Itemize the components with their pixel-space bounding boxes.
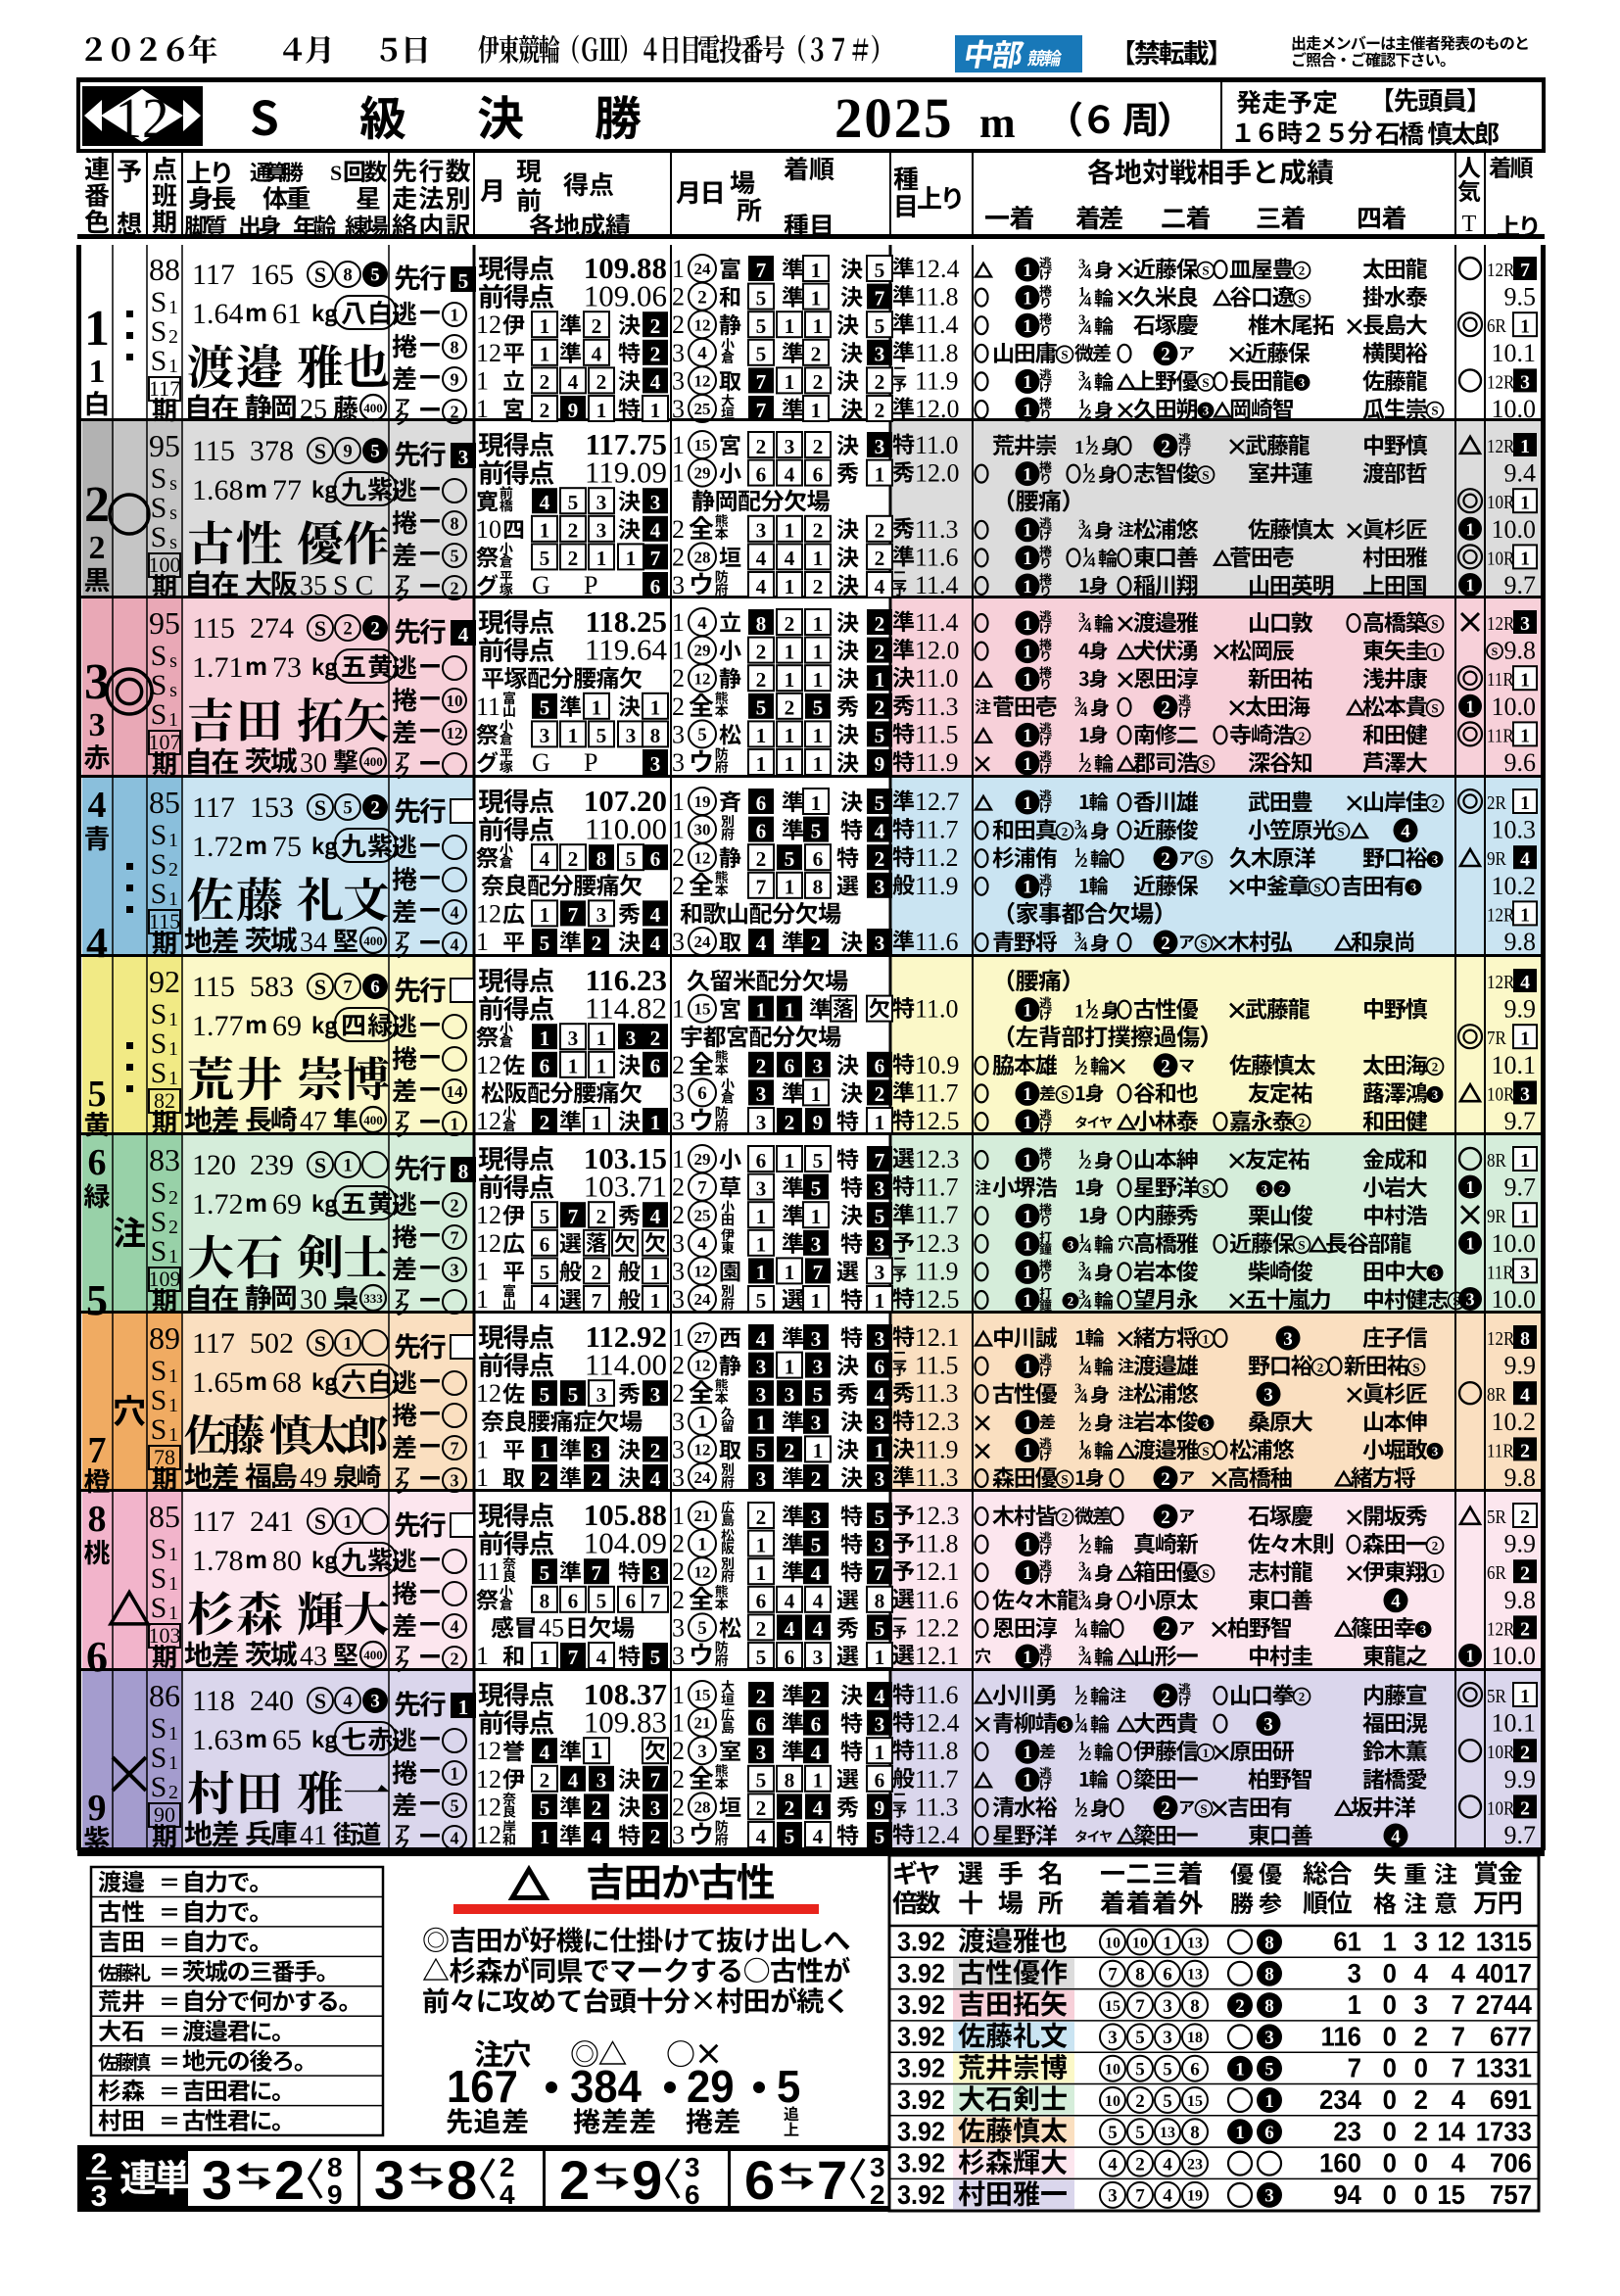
svg-text:2: 2 xyxy=(875,640,885,663)
svg-text:9R: 9R xyxy=(1487,1206,1506,1228)
svg-text:19: 19 xyxy=(1187,2188,1203,2205)
svg-text:6: 6 xyxy=(813,462,824,486)
svg-text:9.7: 9.7 xyxy=(1504,1107,1537,1135)
svg-text:4: 4 xyxy=(1084,1569,1092,1585)
svg-text:7: 7 xyxy=(1135,2186,1145,2207)
svg-text:1: 1 xyxy=(540,519,550,543)
svg-text:1: 1 xyxy=(785,370,795,394)
svg-text:S: S xyxy=(1202,1566,1209,1581)
svg-text:3: 3 xyxy=(650,1796,661,1820)
svg-text:S: S xyxy=(151,1355,167,1387)
svg-text:160: 160 xyxy=(1319,2148,1361,2178)
svg-text:400: 400 xyxy=(363,754,383,769)
svg-text:6: 6 xyxy=(875,1769,885,1793)
svg-text:3: 3 xyxy=(1414,1927,1428,1957)
svg-text:1: 1 xyxy=(1432,645,1439,659)
svg-text:2: 2 xyxy=(1062,824,1069,838)
svg-text:13: 13 xyxy=(1187,1967,1203,1984)
svg-text:4: 4 xyxy=(875,819,885,842)
svg-text:2: 2 xyxy=(168,859,178,881)
svg-text:S: S xyxy=(314,795,326,820)
svg-text:3.92: 3.92 xyxy=(897,2179,945,2211)
svg-text:1: 1 xyxy=(1023,1151,1032,1172)
svg-text:274: 274 xyxy=(250,612,294,645)
svg-text:4: 4 xyxy=(756,932,767,955)
svg-text:2: 2 xyxy=(785,1796,795,1820)
svg-text:1: 1 xyxy=(756,1205,767,1228)
svg-text:4: 4 xyxy=(697,1234,707,1255)
svg-text:8: 8 xyxy=(1135,1965,1145,1985)
svg-text:1: 1 xyxy=(476,1285,489,1314)
svg-text:1.71: 1.71 xyxy=(192,651,244,684)
svg-text:1: 1 xyxy=(1023,401,1032,421)
svg-text:S: S xyxy=(151,848,167,881)
svg-text:5: 5 xyxy=(875,1506,885,1529)
svg-text:7: 7 xyxy=(451,1227,459,1247)
svg-text:8: 8 xyxy=(756,612,767,636)
svg-text:2: 2 xyxy=(875,612,885,636)
svg-text:3: 3 xyxy=(875,876,885,899)
svg-text:2: 2 xyxy=(672,1557,685,1586)
svg-text:1: 1 xyxy=(168,888,178,910)
svg-text:11.3: 11.3 xyxy=(915,693,959,721)
svg-text:9.8: 9.8 xyxy=(1504,1463,1537,1492)
svg-text:3: 3 xyxy=(672,1107,685,1135)
svg-text:3: 3 xyxy=(672,1078,685,1107)
svg-text:47: 47 xyxy=(300,1107,327,1137)
svg-text:0: 0 xyxy=(1414,2148,1428,2178)
svg-text:15: 15 xyxy=(694,1000,711,1019)
svg-text:4: 4 xyxy=(875,575,885,598)
svg-text:1: 1 xyxy=(1520,905,1530,927)
svg-text:1: 1 xyxy=(1023,464,1032,485)
svg-text:11.0: 11.0 xyxy=(915,995,959,1024)
svg-text:95: 95 xyxy=(149,605,180,641)
svg-text:6: 6 xyxy=(1264,2123,1274,2143)
svg-text:2: 2 xyxy=(650,1439,661,1462)
svg-text:1: 1 xyxy=(1023,1413,1032,1434)
svg-text:2: 2 xyxy=(756,1617,767,1641)
svg-text:4: 4 xyxy=(811,1561,822,1585)
svg-text:7: 7 xyxy=(756,399,767,422)
svg-text:5: 5 xyxy=(785,847,795,871)
svg-text:1: 1 xyxy=(1520,315,1530,337)
svg-text:5: 5 xyxy=(813,696,824,720)
svg-text:2: 2 xyxy=(1161,1619,1170,1640)
svg-text:8: 8 xyxy=(343,265,352,286)
svg-text:12: 12 xyxy=(694,372,711,391)
svg-text:8: 8 xyxy=(1264,1965,1274,1985)
svg-text:10: 10 xyxy=(1105,2093,1120,2110)
svg-text:3: 3 xyxy=(89,707,106,743)
svg-text:2: 2 xyxy=(1299,729,1306,743)
svg-text:2: 2 xyxy=(168,326,178,348)
svg-text:5: 5 xyxy=(568,1383,579,1407)
svg-text:S: S xyxy=(151,1057,167,1089)
svg-text:S: S xyxy=(151,878,167,910)
svg-text:5: 5 xyxy=(813,1383,824,1407)
svg-text:1: 1 xyxy=(476,1257,489,1285)
svg-text:5: 5 xyxy=(756,696,767,720)
svg-text:11.8: 11.8 xyxy=(915,1737,959,1765)
svg-text:706: 706 xyxy=(1490,2148,1532,2178)
svg-text:11R: 11R xyxy=(1487,725,1514,747)
svg-text:11.7: 11.7 xyxy=(915,1765,959,1794)
svg-text:1: 1 xyxy=(1520,792,1530,814)
svg-text:1: 1 xyxy=(1023,372,1032,393)
svg-text:1: 1 xyxy=(1023,1207,1032,1227)
svg-text:6: 6 xyxy=(811,1712,822,1736)
svg-text:4: 4 xyxy=(451,902,459,922)
svg-text:1: 1 xyxy=(343,1334,352,1355)
svg-text:8: 8 xyxy=(813,876,824,899)
svg-text:1: 1 xyxy=(1023,1743,1032,1763)
svg-text:7: 7 xyxy=(875,1561,885,1585)
svg-text:109.83: 109.83 xyxy=(584,1705,667,1740)
svg-text:3: 3 xyxy=(1520,372,1530,394)
svg-text:13: 13 xyxy=(1187,1935,1203,1951)
svg-text:1: 1 xyxy=(168,1752,178,1774)
svg-text:2: 2 xyxy=(1432,1538,1439,1553)
svg-text:9: 9 xyxy=(813,1111,824,1134)
svg-text:10.1: 10.1 xyxy=(1492,339,1537,367)
svg-text:4: 4 xyxy=(1084,266,1092,282)
svg-text:10: 10 xyxy=(447,692,463,710)
svg-text:117: 117 xyxy=(192,1327,235,1360)
svg-text:12R: 12R xyxy=(1487,371,1515,394)
svg-text:11.6: 11.6 xyxy=(915,1681,959,1709)
svg-text:3: 3 xyxy=(626,724,637,747)
svg-text:2: 2 xyxy=(1520,1507,1530,1528)
svg-text:11R: 11R xyxy=(1487,1262,1514,1284)
svg-text:3: 3 xyxy=(756,1383,767,1407)
svg-text:4: 4 xyxy=(1163,2186,1172,2207)
svg-text:9.7: 9.7 xyxy=(1504,1173,1537,1202)
svg-text:2: 2 xyxy=(592,1261,602,1284)
svg-text:3: 3 xyxy=(672,1463,685,1492)
svg-text:11.6: 11.6 xyxy=(915,928,959,956)
svg-text:2: 2 xyxy=(1161,437,1170,457)
svg-text:0: 0 xyxy=(1383,2179,1397,2210)
svg-text:2: 2 xyxy=(785,1111,795,1134)
svg-text:1: 1 xyxy=(672,995,685,1024)
svg-text:2: 2 xyxy=(1084,760,1092,776)
svg-text:3: 3 xyxy=(672,1613,685,1642)
svg-text:S: S xyxy=(151,1028,167,1060)
svg-text:2: 2 xyxy=(1084,407,1092,422)
svg-text:1: 1 xyxy=(785,724,795,747)
svg-text:3: 3 xyxy=(592,1439,602,1462)
svg-text:2: 2 xyxy=(500,2152,515,2182)
svg-text:1: 1 xyxy=(1520,669,1530,691)
svg-text:2: 2 xyxy=(672,1737,685,1765)
svg-text:1: 1 xyxy=(540,1027,550,1050)
svg-text:9.8: 9.8 xyxy=(1504,1586,1537,1614)
svg-text:S: S xyxy=(1337,824,1344,838)
svg-text:1: 1 xyxy=(451,1114,459,1133)
svg-text:6: 6 xyxy=(650,847,661,871)
svg-text:3: 3 xyxy=(672,748,685,777)
svg-text:12: 12 xyxy=(476,339,501,367)
svg-text:8: 8 xyxy=(327,2152,343,2182)
svg-text:11.2: 11.2 xyxy=(915,843,959,872)
svg-text:2: 2 xyxy=(811,932,822,955)
svg-text:11R: 11R xyxy=(1487,1440,1514,1462)
svg-text:12: 12 xyxy=(447,724,463,742)
svg-text:7: 7 xyxy=(650,1769,661,1793)
svg-text:7: 7 xyxy=(88,1430,107,1471)
svg-text:9.7: 9.7 xyxy=(1504,1821,1537,1849)
svg-text:1: 1 xyxy=(875,668,885,692)
svg-text:2: 2 xyxy=(1161,345,1170,365)
svg-text:11: 11 xyxy=(476,1557,500,1586)
svg-text:1: 1 xyxy=(540,1646,550,1669)
svg-text:1: 1 xyxy=(1023,614,1032,635)
svg-text:7: 7 xyxy=(1135,1996,1145,2017)
svg-text:100: 100 xyxy=(149,552,181,577)
svg-text:2: 2 xyxy=(650,314,661,338)
svg-text:11.4: 11.4 xyxy=(915,608,959,637)
svg-text:3: 3 xyxy=(875,932,885,955)
svg-text:9.9: 9.9 xyxy=(1504,995,1537,1024)
svg-text:3: 3 xyxy=(1520,613,1530,635)
svg-text:1: 1 xyxy=(1432,1566,1439,1581)
svg-text:1: 1 xyxy=(1023,1441,1032,1461)
svg-text:115: 115 xyxy=(192,971,235,1003)
svg-text:1: 1 xyxy=(1264,2091,1274,2112)
svg-text:10R: 10R xyxy=(1487,1083,1515,1106)
svg-text:2: 2 xyxy=(540,370,550,394)
svg-text:12: 12 xyxy=(476,1821,501,1849)
svg-text:5: 5 xyxy=(697,1618,707,1639)
svg-text:10.0: 10.0 xyxy=(1492,1229,1537,1258)
svg-text:153: 153 xyxy=(250,791,294,824)
svg-text:1: 1 xyxy=(785,1355,795,1378)
svg-text:11.9: 11.9 xyxy=(915,1435,959,1463)
svg-text:1: 1 xyxy=(672,431,685,459)
svg-text:3: 3 xyxy=(1263,1714,1273,1735)
svg-text:4: 4 xyxy=(1520,1384,1530,1406)
svg-text:2: 2 xyxy=(672,664,685,693)
svg-text:7: 7 xyxy=(817,2149,847,2211)
svg-text:1: 1 xyxy=(1520,1028,1530,1049)
svg-text:3: 3 xyxy=(650,1383,661,1407)
svg-text:12.4: 12.4 xyxy=(915,1709,960,1738)
svg-text:1: 1 xyxy=(540,903,550,927)
svg-text:1: 1 xyxy=(1074,437,1084,458)
svg-text:333: 333 xyxy=(363,1291,383,1306)
svg-text:S: S xyxy=(1200,852,1207,867)
svg-text:3: 3 xyxy=(875,1327,885,1351)
svg-text:28: 28 xyxy=(694,549,711,567)
svg-text:23: 23 xyxy=(1333,2116,1361,2146)
svg-text:3: 3 xyxy=(568,1027,579,1050)
svg-text:8: 8 xyxy=(1264,1933,1274,1953)
svg-text:3.92: 3.92 xyxy=(897,2021,945,2052)
svg-text:23: 23 xyxy=(1187,2156,1203,2173)
svg-text:5: 5 xyxy=(756,1769,767,1793)
svg-text:6: 6 xyxy=(756,462,767,486)
svg-text:2: 2 xyxy=(592,1796,602,1820)
svg-text:8: 8 xyxy=(596,847,607,871)
svg-text:3: 3 xyxy=(870,2152,885,2182)
svg-text:1: 1 xyxy=(813,668,824,692)
svg-text:2: 2 xyxy=(1161,1798,1170,1819)
svg-text:83: 83 xyxy=(149,1142,180,1177)
svg-text:114.00: 114.00 xyxy=(585,1348,667,1382)
svg-text:3: 3 xyxy=(1283,1329,1293,1350)
svg-text:1: 1 xyxy=(1520,1150,1530,1172)
svg-text:1: 1 xyxy=(785,640,795,663)
svg-text:4: 4 xyxy=(540,491,550,514)
svg-text:12R: 12R xyxy=(1487,613,1515,636)
svg-text:9.4: 9.4 xyxy=(1504,459,1537,488)
svg-text:583: 583 xyxy=(250,971,294,1003)
svg-text:2: 2 xyxy=(540,1769,550,1793)
svg-text:3: 3 xyxy=(875,1533,885,1556)
svg-text:1: 1 xyxy=(1023,1084,1032,1105)
svg-text:1: 1 xyxy=(1023,726,1032,746)
svg-text:12.4: 12.4 xyxy=(915,1821,960,1849)
svg-text:3: 3 xyxy=(84,654,110,710)
svg-text:5: 5 xyxy=(785,1825,795,1848)
svg-text:30: 30 xyxy=(300,1285,327,1315)
svg-text:S: S xyxy=(1492,645,1499,658)
svg-text:2: 2 xyxy=(813,519,824,543)
svg-text:5: 5 xyxy=(756,1646,767,1669)
svg-text:1: 1 xyxy=(785,575,795,598)
svg-text:10.1: 10.1 xyxy=(1492,1709,1537,1738)
svg-text:S: S xyxy=(1298,291,1305,306)
svg-text:78: 78 xyxy=(154,1445,175,1469)
svg-text:2: 2 xyxy=(91,2148,108,2180)
svg-text:109.06: 109.06 xyxy=(584,279,667,313)
svg-text:7: 7 xyxy=(1348,2053,1361,2083)
svg-text:92: 92 xyxy=(149,964,180,999)
svg-text:S: S xyxy=(314,1689,326,1713)
svg-text:3: 3 xyxy=(756,1355,767,1378)
svg-text:7: 7 xyxy=(1452,1989,1465,2020)
svg-text:1: 1 xyxy=(1023,1535,1032,1555)
svg-text:11.9: 11.9 xyxy=(915,1257,959,1285)
svg-text:S: S xyxy=(314,1331,326,1356)
svg-text:2: 2 xyxy=(1161,933,1170,954)
svg-text:1: 1 xyxy=(811,259,822,282)
svg-text:1: 1 xyxy=(1203,1332,1210,1347)
svg-text:4: 4 xyxy=(1084,1598,1092,1613)
svg-text:2: 2 xyxy=(84,477,110,533)
svg-text:3: 3 xyxy=(756,1111,767,1134)
svg-text:2: 2 xyxy=(1432,1059,1439,1074)
svg-text:5: 5 xyxy=(343,798,352,819)
svg-text:12R: 12R xyxy=(1487,1618,1515,1641)
svg-text:378: 378 xyxy=(250,435,294,467)
svg-text:1: 1 xyxy=(1023,316,1032,337)
svg-text:4: 4 xyxy=(1088,554,1096,570)
svg-text:2: 2 xyxy=(596,1205,607,1228)
svg-text:3.92: 3.92 xyxy=(897,1926,945,1957)
svg-text:10.0: 10.0 xyxy=(1492,395,1537,423)
svg-text:8: 8 xyxy=(458,1160,469,1183)
svg-text:7: 7 xyxy=(650,547,661,570)
svg-text:400: 400 xyxy=(363,1113,383,1127)
svg-text:1: 1 xyxy=(1466,1233,1475,1253)
svg-text:12.7: 12.7 xyxy=(915,788,960,816)
svg-text:1: 1 xyxy=(343,1156,352,1176)
svg-text:1: 1 xyxy=(672,255,685,283)
svg-text:4: 4 xyxy=(1391,1592,1401,1612)
svg-text:400: 400 xyxy=(363,1648,383,1662)
svg-text:12: 12 xyxy=(476,1201,501,1229)
svg-text:1: 1 xyxy=(1520,549,1530,570)
svg-text:8: 8 xyxy=(451,513,459,533)
svg-text:1: 1 xyxy=(592,1111,602,1134)
svg-text:5: 5 xyxy=(540,1796,550,1820)
svg-text:S: S xyxy=(1200,1801,1207,1816)
svg-text:1: 1 xyxy=(756,1261,767,1284)
svg-text:8R: 8R xyxy=(1487,1150,1506,1172)
svg-text:S: S xyxy=(151,640,167,672)
svg-text:7: 7 xyxy=(756,259,767,282)
svg-text:3: 3 xyxy=(596,1383,607,1407)
svg-text:9: 9 xyxy=(327,2179,343,2210)
svg-text:1: 1 xyxy=(568,1055,579,1078)
svg-text:1: 1 xyxy=(1023,1000,1032,1021)
svg-text:1: 1 xyxy=(672,608,685,637)
svg-text:3: 3 xyxy=(458,446,469,469)
svg-text:4: 4 xyxy=(451,1828,459,1847)
svg-text:1: 1 xyxy=(785,519,795,543)
svg-text:1: 1 xyxy=(168,1544,178,1565)
svg-text:104.09: 104.09 xyxy=(584,1526,667,1560)
svg-text:15: 15 xyxy=(1437,2179,1465,2210)
svg-text:6: 6 xyxy=(568,1590,579,1613)
svg-text:1: 1 xyxy=(596,399,607,422)
svg-text:S: S xyxy=(1202,1444,1209,1459)
svg-text:5: 5 xyxy=(811,1533,822,1556)
svg-text:30: 30 xyxy=(300,748,327,779)
svg-text:5: 5 xyxy=(1135,2123,1145,2143)
svg-text:9: 9 xyxy=(451,369,459,389)
svg-text:2: 2 xyxy=(1161,1507,1170,1528)
svg-text:5: 5 xyxy=(540,547,550,570)
svg-text:4: 4 xyxy=(813,1617,824,1641)
svg-text:1: 1 xyxy=(1520,1206,1530,1227)
svg-text:12.1: 12.1 xyxy=(915,1323,960,1352)
svg-text:114.82: 114.82 xyxy=(585,991,667,1026)
svg-text:S: S xyxy=(314,1153,326,1177)
svg-text:5: 5 xyxy=(777,2061,800,2112)
svg-text:1: 1 xyxy=(650,1289,661,1313)
svg-text:1: 1 xyxy=(813,724,824,747)
svg-text:9.9: 9.9 xyxy=(1504,1765,1537,1794)
svg-text:24: 24 xyxy=(694,1468,712,1487)
svg-text:9: 9 xyxy=(875,752,885,776)
svg-text:2: 2 xyxy=(756,1685,767,1708)
svg-text:2: 2 xyxy=(568,519,579,543)
svg-text:2: 2 xyxy=(811,1467,822,1491)
svg-text:3: 3 xyxy=(756,1741,767,1764)
svg-text:1: 1 xyxy=(1023,261,1032,281)
svg-text:15: 15 xyxy=(1105,1998,1120,2015)
svg-text:5: 5 xyxy=(451,546,459,565)
svg-text:4: 4 xyxy=(86,919,108,967)
svg-text:5: 5 xyxy=(540,1261,550,1284)
svg-text:4: 4 xyxy=(568,370,579,394)
svg-text:10.9: 10.9 xyxy=(915,1051,960,1079)
svg-text:5: 5 xyxy=(1135,2028,1145,2048)
svg-text:4: 4 xyxy=(650,519,661,543)
